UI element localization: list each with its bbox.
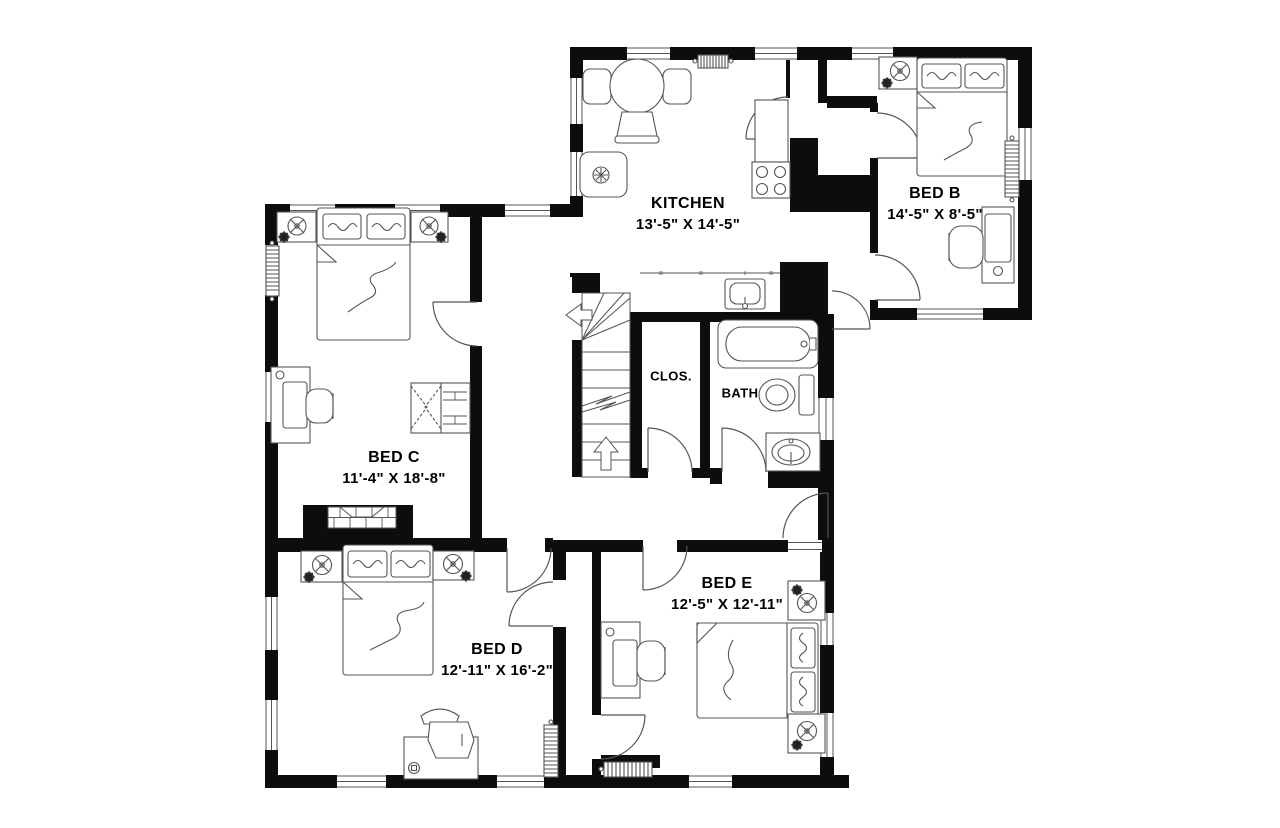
stove-icon xyxy=(752,162,790,198)
fireplace-icon xyxy=(328,507,396,528)
desk-chair-icon xyxy=(404,709,478,779)
kitchen-fixtures xyxy=(580,55,790,309)
bed-icon xyxy=(697,623,818,718)
bed-icon xyxy=(343,545,433,675)
furniture-bed-e xyxy=(599,581,825,777)
bath-fixtures xyxy=(718,320,820,471)
toilet-icon xyxy=(759,375,814,415)
radiator-icon xyxy=(599,762,652,777)
floor-plan-drawing xyxy=(0,0,1280,828)
kitchen-sink-icon xyxy=(640,271,780,309)
furniture-bed-b xyxy=(879,57,1019,283)
furniture-bed-d xyxy=(301,545,558,779)
nightstand-lamp-icon xyxy=(433,551,474,582)
closet-unit-icon xyxy=(411,383,470,433)
nightstand-lamp-icon xyxy=(411,212,448,243)
bathtub-icon xyxy=(718,320,818,368)
bed-icon xyxy=(917,58,1007,176)
radiator-icon xyxy=(266,241,279,301)
desk-chair-icon xyxy=(601,622,665,698)
nightstand-lamp-icon xyxy=(788,581,825,620)
dining-table-icon xyxy=(583,59,691,143)
refrigerator-icon xyxy=(580,152,627,197)
desk-chair-icon xyxy=(949,207,1014,283)
nightstand-lamp-icon xyxy=(301,551,342,583)
bed-icon xyxy=(317,208,410,340)
radiator-icon xyxy=(693,55,733,68)
nightstand-lamp-icon xyxy=(879,57,917,89)
floor-plan-canvas: KITCHEN 13'-5" X 14'-5" BED B 14'-5" X 8… xyxy=(0,0,1280,828)
radiator-icon xyxy=(544,720,558,777)
nightstand-lamp-icon xyxy=(277,212,316,243)
vanity-sink-icon xyxy=(766,433,820,471)
desk-chair-icon xyxy=(271,367,333,443)
nightstand-lamp-icon xyxy=(788,714,825,753)
radiator-icon xyxy=(1005,136,1019,202)
kitchen-counter xyxy=(755,100,788,162)
